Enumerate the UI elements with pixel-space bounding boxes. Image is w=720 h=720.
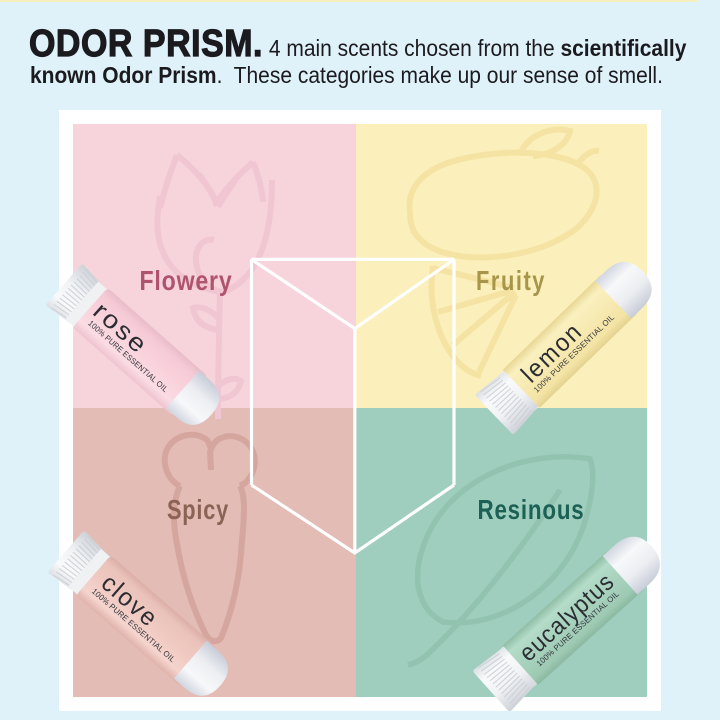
svg-text:Resinous: Resinous [478,494,585,525]
svg-text:Spicy: Spicy [167,494,229,525]
svg-text:Flowery: Flowery [140,265,233,296]
svg-text:Fruity: Fruity [476,265,546,296]
